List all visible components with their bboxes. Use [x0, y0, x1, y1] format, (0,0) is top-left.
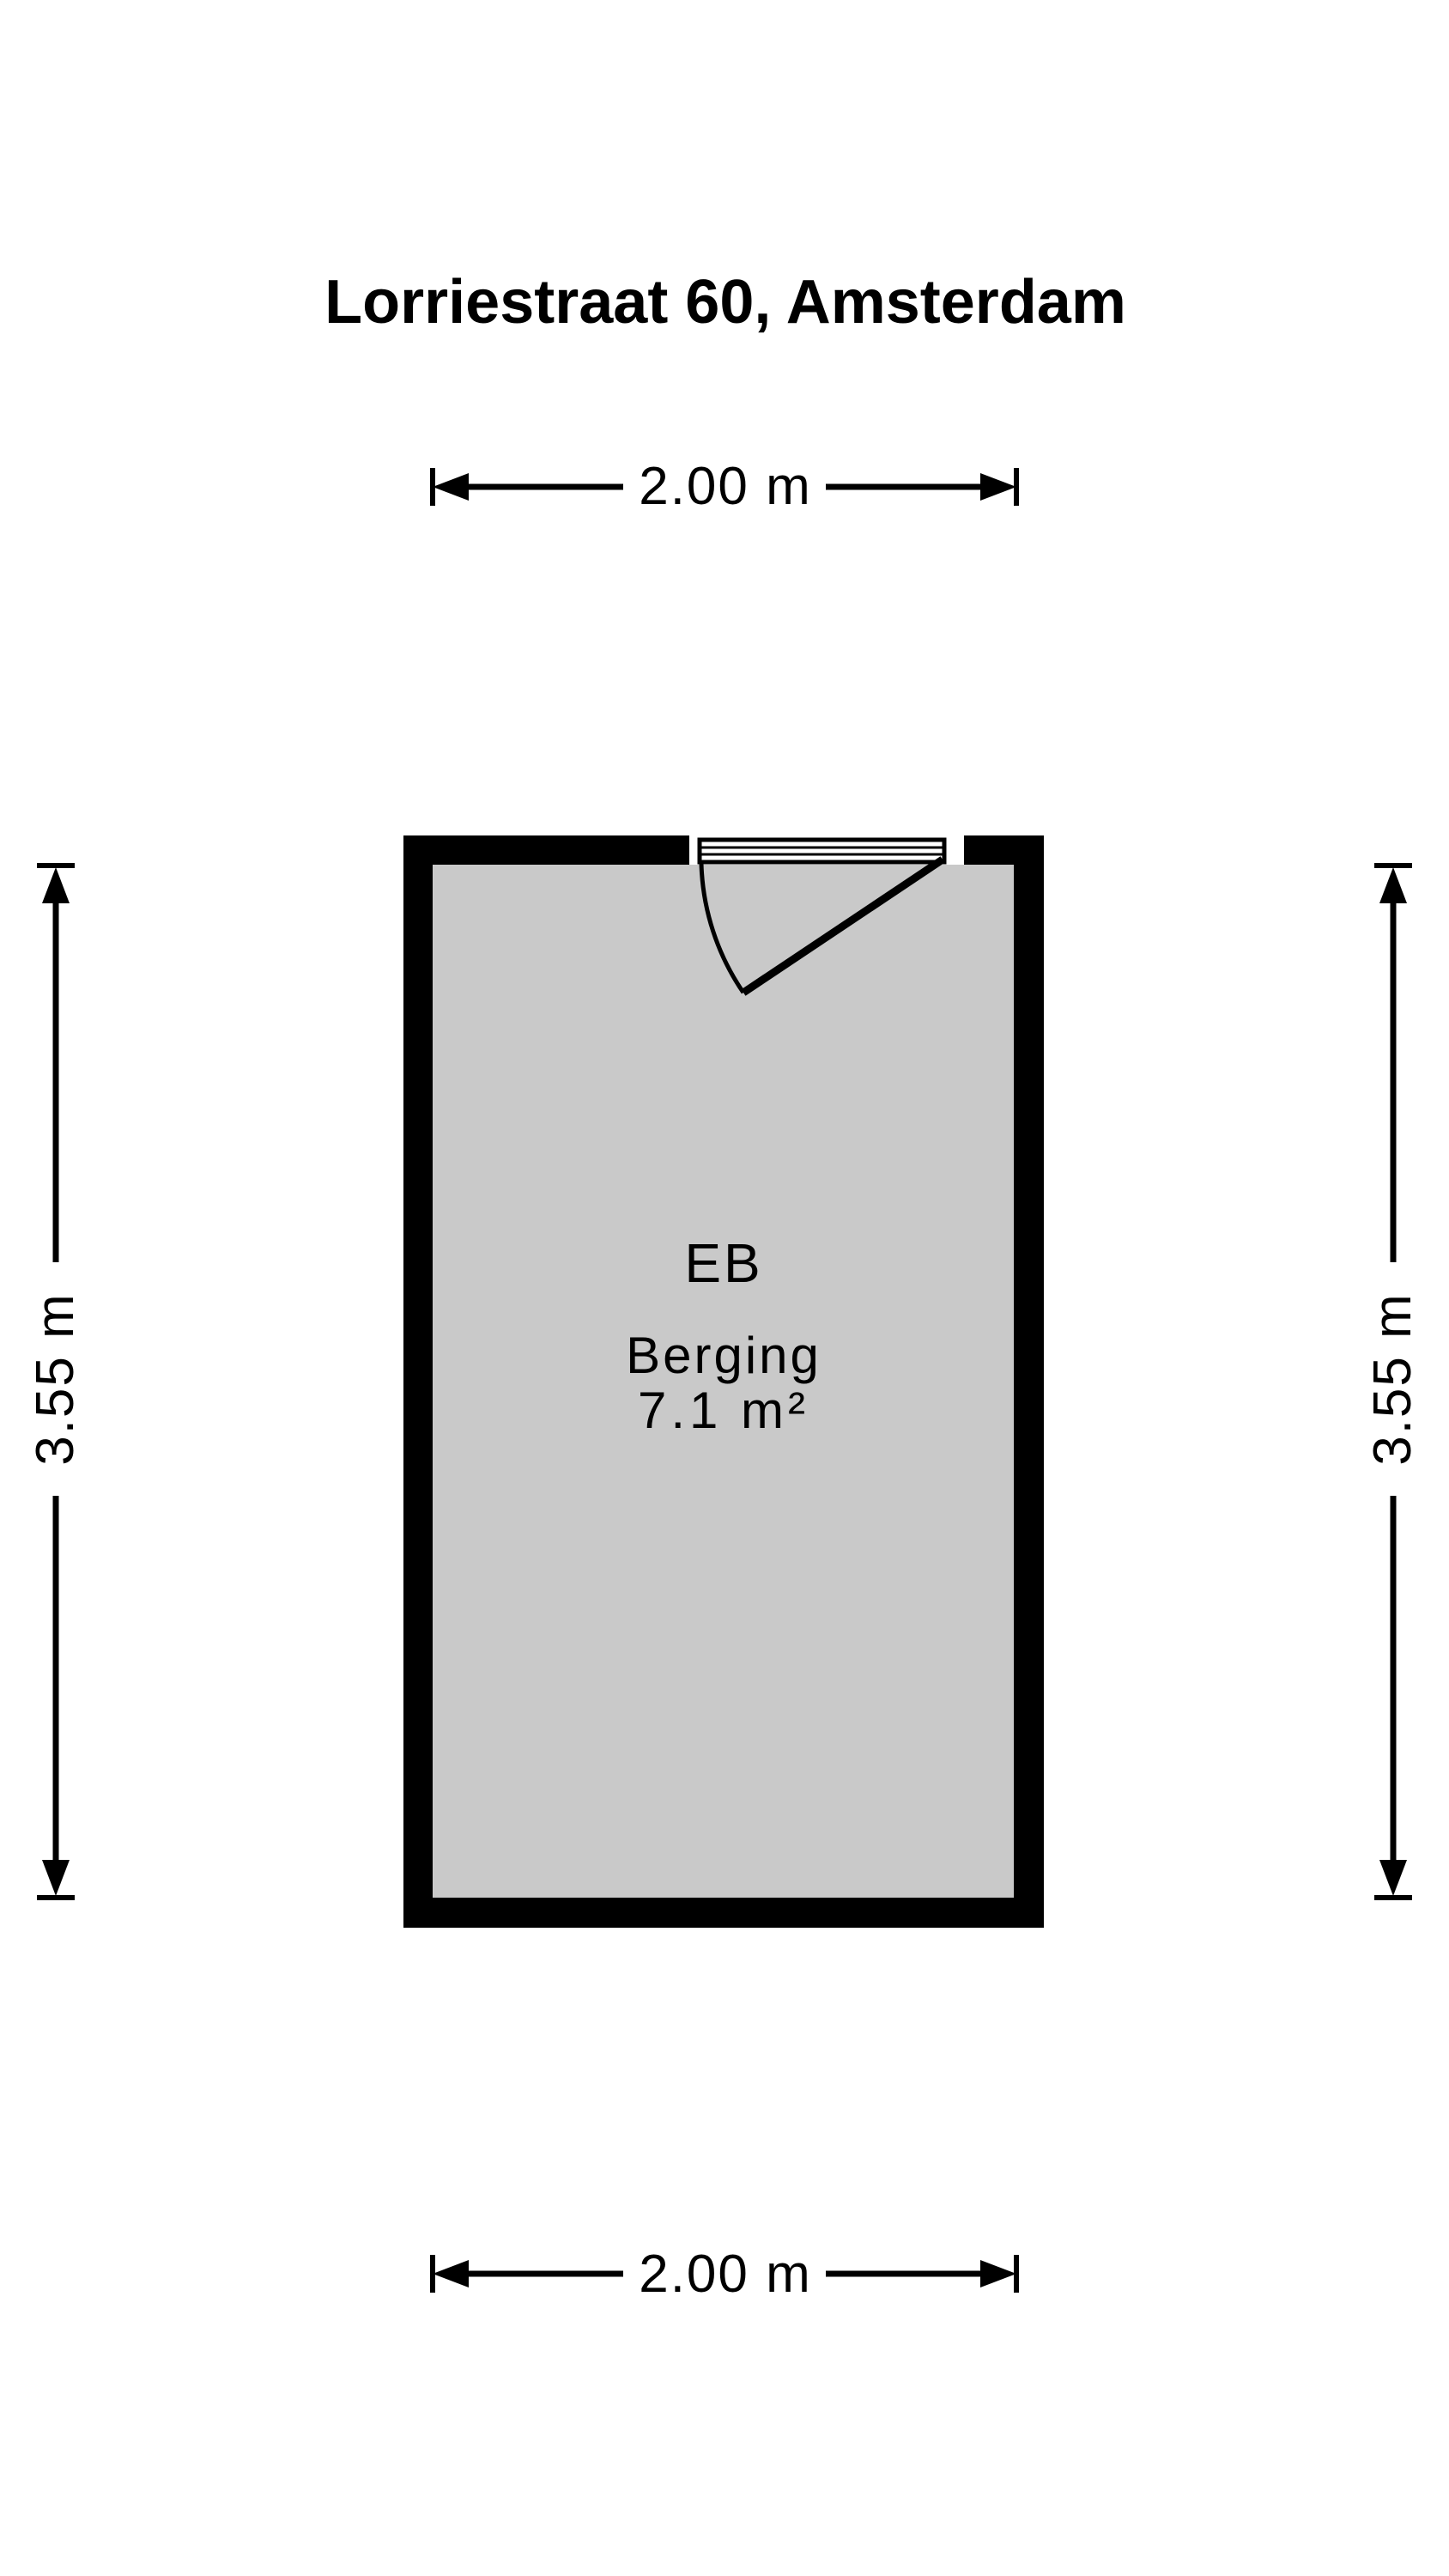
dim-right-bottom-arrowhead [1379, 1860, 1407, 1896]
dim-top-right-arrowhead [980, 473, 1016, 501]
dim-bottom-left-arrowhead [433, 2260, 469, 2287]
dim-left-top-arrowhead [42, 867, 70, 903]
dim-top-left-arrowhead [433, 473, 469, 501]
dim-right-top-arrowhead [1379, 867, 1407, 903]
room-code-label: EB [684, 1236, 762, 1291]
door-panel-outline [700, 840, 944, 862]
floorplan-page: Lorriestraat 60, Amsterdam [0, 0, 1449, 2576]
dimension-label-top: 2.00 m [639, 460, 812, 513]
room-area-label: 7.1 m² [638, 1385, 809, 1437]
door-frame-panel [700, 840, 944, 862]
dimension-label-left: 3.55 m [29, 1292, 82, 1466]
room-name-label: Berging [626, 1330, 822, 1382]
dimension-label-right: 3.55 m [1367, 1292, 1420, 1466]
dim-left-bottom-arrowhead [42, 1860, 70, 1896]
dim-bottom-right-arrowhead [980, 2260, 1016, 2287]
dimension-label-bottom: 2.00 m [639, 2248, 812, 2301]
